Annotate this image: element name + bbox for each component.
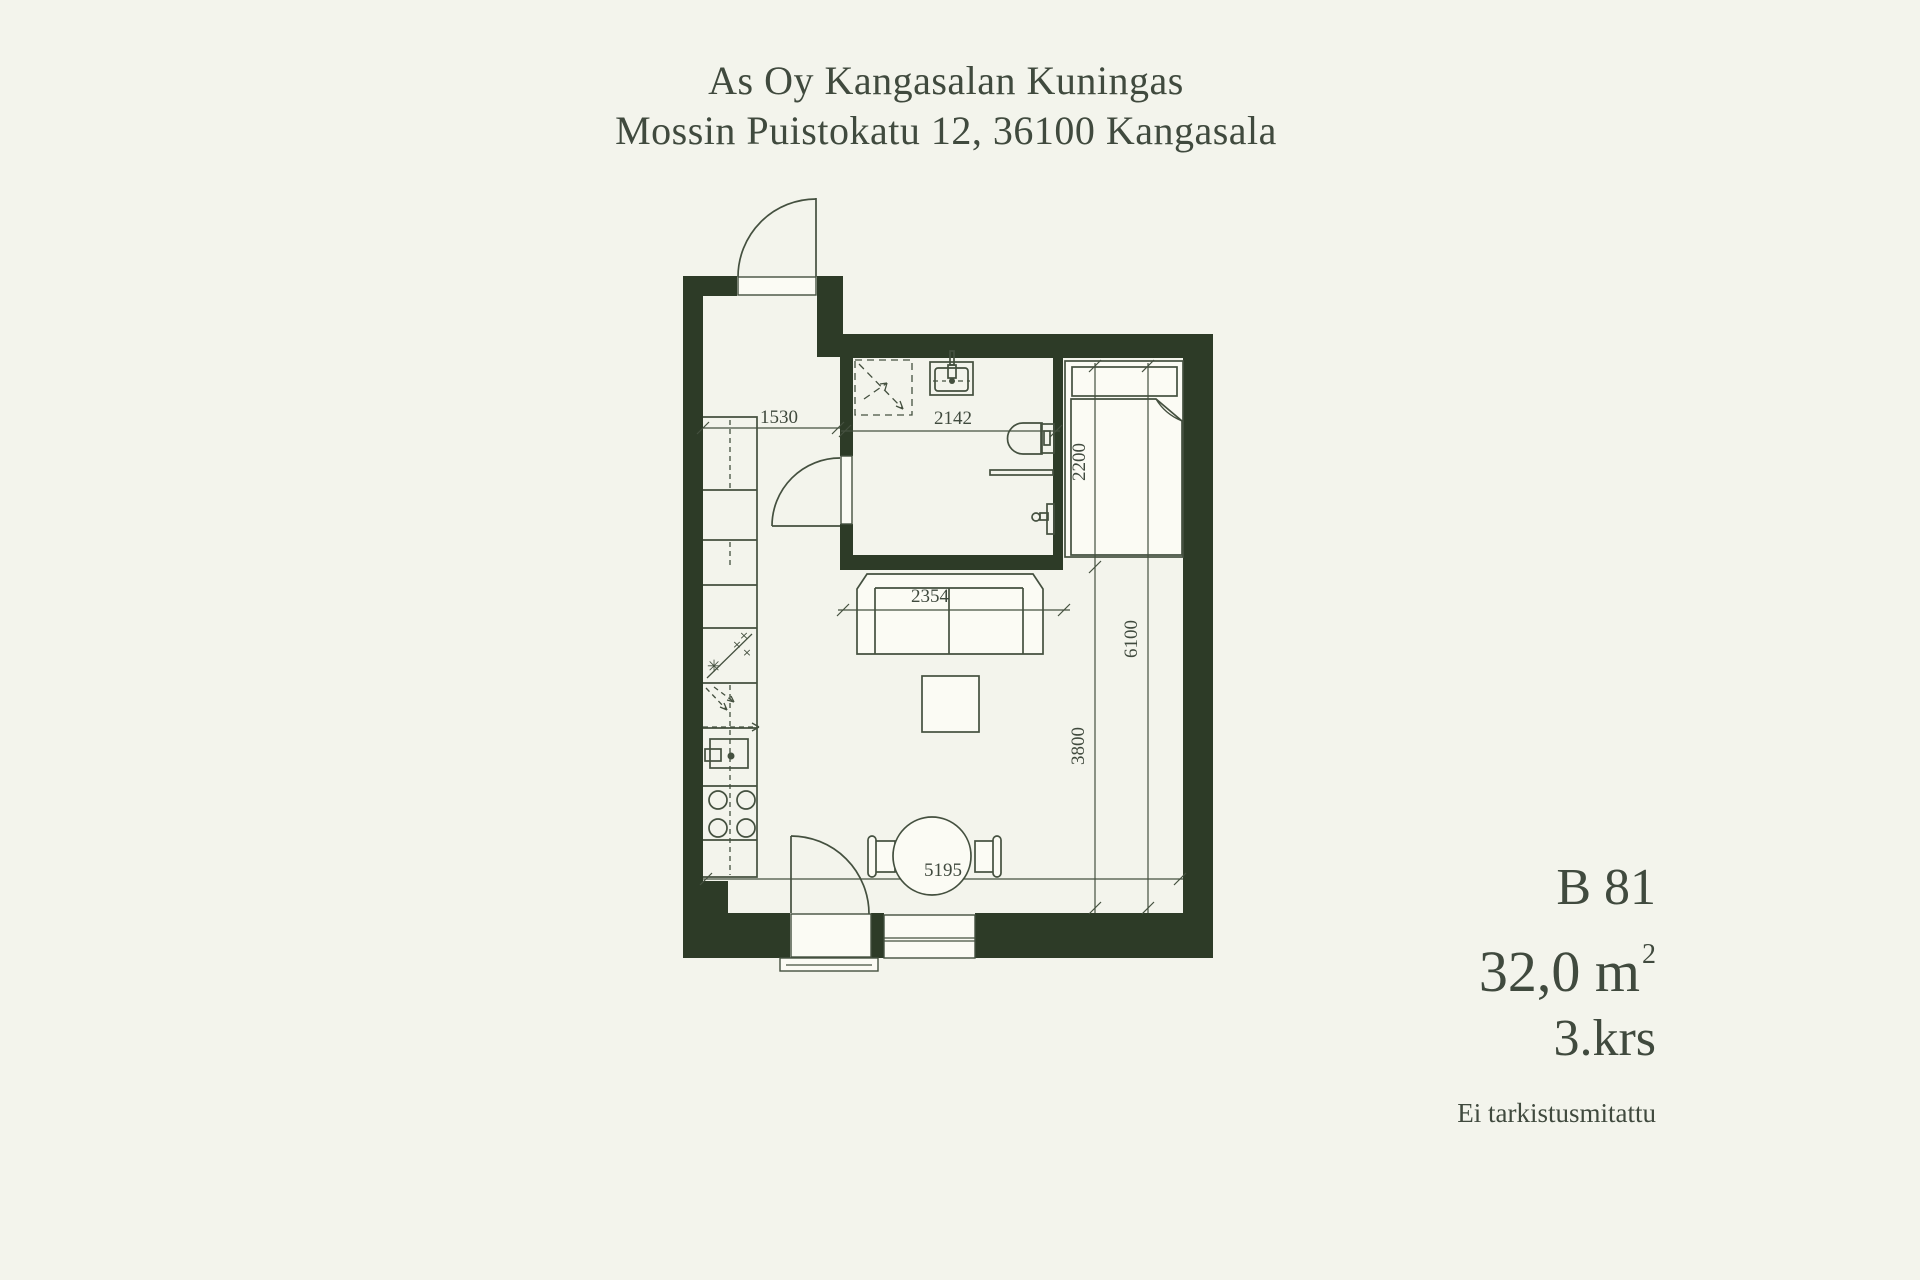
towel-rail	[990, 470, 1053, 475]
dim-room-depth: 6100	[1121, 620, 1142, 658]
wall-bath-left-upper	[840, 357, 853, 456]
balcony-door	[791, 836, 871, 957]
dishwasher-symbol	[703, 687, 759, 731]
balcony-railing	[780, 958, 878, 971]
dim-living-zone: 3800	[1068, 727, 1089, 765]
dim-sofa-width: 2354	[911, 586, 950, 607]
fridge-symbol: ✳ × × ×	[707, 629, 752, 678]
bathroom-door	[772, 456, 852, 526]
wall-right	[1183, 334, 1213, 958]
dining-chair-right	[975, 836, 1001, 877]
pillow	[1072, 367, 1177, 396]
wall-bottom-right	[975, 913, 1183, 958]
dim-hallway-width: 1530	[760, 407, 798, 428]
toilet	[1008, 423, 1055, 454]
cross-icon: ×	[742, 646, 751, 659]
area-superscript: 2	[1642, 939, 1656, 970]
shower	[855, 360, 912, 415]
unit-info-block: B 81 32,0 m2 3.krs Ei tarkistusmitattu	[1457, 860, 1656, 1129]
wall-bath-right	[1053, 357, 1063, 570]
dim-bed-zone: 2200	[1069, 443, 1090, 481]
coffee-table	[922, 676, 979, 732]
wall-corner-post	[817, 276, 843, 357]
kitchen-sink	[705, 739, 748, 768]
dining-chair-left	[868, 836, 895, 877]
dim-room-width: 5195	[924, 860, 962, 881]
unit-note: Ei tarkistusmitattu	[1457, 1097, 1656, 1129]
dining-table	[893, 817, 971, 895]
wall-bottom-pier	[871, 913, 884, 958]
entry-door	[738, 198, 816, 295]
unit-floor: 3.krs	[1457, 1009, 1656, 1069]
floorplan-page: As Oy Kangasalan Kuningas Mossin Puistok…	[0, 0, 1920, 1280]
wall-left	[683, 276, 703, 958]
dim-bathroom-width: 2142	[934, 408, 972, 429]
window	[884, 915, 975, 958]
wall-bath-bottom	[840, 555, 1063, 570]
washer-tap	[1032, 504, 1054, 534]
wall-bottom-left	[683, 913, 790, 958]
wall-top-main	[840, 334, 1213, 358]
cross-icon: ×	[739, 629, 748, 642]
sofa	[857, 574, 1043, 654]
wall-column	[703, 881, 728, 914]
wall-hall-top	[683, 276, 737, 296]
stove	[709, 791, 755, 837]
unit-id: B 81	[1457, 860, 1656, 916]
freezer-star-icon: ✳	[707, 657, 721, 677]
unit-area: 32,0 m2	[1457, 922, 1656, 1005]
